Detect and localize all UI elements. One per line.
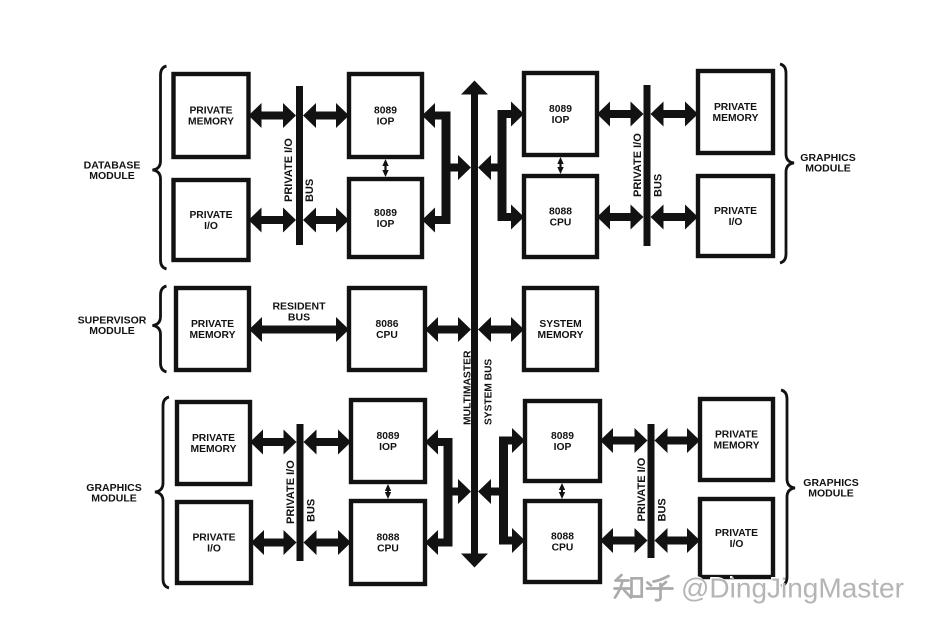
- svg-text:I/O: I/O: [730, 539, 744, 550]
- svg-text:CPU: CPU: [552, 542, 574, 553]
- svg-text:PRIVATE I/O: PRIVATE I/O: [632, 133, 644, 197]
- svg-text:PRIVATE: PRIVATE: [191, 319, 234, 330]
- svg-text:MEMORY: MEMORY: [188, 116, 234, 127]
- svg-text:IOP: IOP: [554, 442, 572, 453]
- svg-text:PRIVATE: PRIVATE: [189, 210, 232, 221]
- svg-text:PRIVATE: PRIVATE: [714, 102, 757, 113]
- svg-text:IOP: IOP: [377, 219, 395, 230]
- svg-text:BUS: BUS: [304, 179, 316, 202]
- svg-text:MEMORY: MEMORY: [191, 444, 237, 455]
- svg-text:8088: 8088: [551, 532, 574, 543]
- svg-text:8089: 8089: [549, 104, 572, 115]
- svg-text:MULTIMASTER: MULTIMASTER: [463, 350, 474, 425]
- svg-text:8089: 8089: [377, 431, 400, 442]
- svg-text:8089: 8089: [374, 106, 397, 117]
- svg-text:I/O: I/O: [204, 221, 218, 232]
- svg-text:BUS: BUS: [288, 312, 310, 324]
- svg-text:I/O: I/O: [207, 543, 221, 554]
- svg-text:MEMORY: MEMORY: [713, 113, 759, 124]
- svg-text:8089: 8089: [551, 431, 574, 442]
- svg-text:IOP: IOP: [377, 116, 395, 127]
- svg-text:PRIVATE: PRIVATE: [714, 206, 757, 217]
- svg-text:I/O: I/O: [729, 217, 743, 228]
- svg-text:@DingJingMaster: @DingJingMaster: [681, 573, 904, 604]
- svg-text:PRIVATE: PRIVATE: [715, 430, 758, 441]
- svg-text:PRIVATE: PRIVATE: [192, 433, 235, 444]
- svg-text:MEMORY: MEMORY: [190, 330, 236, 341]
- svg-text:PRIVATE I/O: PRIVATE I/O: [636, 457, 648, 521]
- svg-text:PRIVATE: PRIVATE: [192, 533, 235, 544]
- svg-text:CPU: CPU: [376, 330, 398, 341]
- svg-text:PRIVATE I/O: PRIVATE I/O: [285, 460, 297, 524]
- svg-text:MODULE: MODULE: [805, 163, 851, 175]
- svg-text:8088: 8088: [549, 207, 572, 218]
- svg-text:MODULE: MODULE: [89, 170, 135, 182]
- svg-text:SYSTEM BUS: SYSTEM BUS: [484, 359, 495, 425]
- svg-text:BUS: BUS: [653, 174, 665, 197]
- svg-text:IOP: IOP: [379, 442, 397, 453]
- svg-text:IOP: IOP: [552, 115, 570, 126]
- svg-text:MODULE: MODULE: [89, 325, 135, 337]
- svg-text:MEMORY: MEMORY: [714, 440, 760, 451]
- svg-text:BUS: BUS: [657, 498, 669, 521]
- svg-text:PRIVATE: PRIVATE: [189, 106, 232, 117]
- svg-text:MODULE: MODULE: [808, 488, 854, 500]
- svg-text:SYSTEM: SYSTEM: [539, 319, 581, 330]
- svg-text:PRIVATE: PRIVATE: [715, 528, 758, 539]
- svg-text:CPU: CPU: [550, 217, 572, 228]
- svg-text:PRIVATE I/O: PRIVATE I/O: [283, 138, 295, 202]
- svg-text:MODULE: MODULE: [91, 493, 137, 505]
- svg-text:CPU: CPU: [377, 543, 399, 554]
- svg-text:8088: 8088: [377, 533, 400, 544]
- svg-text:MEMORY: MEMORY: [538, 330, 584, 341]
- svg-text:8089: 8089: [374, 208, 397, 219]
- svg-text:BUS: BUS: [306, 499, 318, 522]
- svg-text:8086: 8086: [376, 319, 399, 330]
